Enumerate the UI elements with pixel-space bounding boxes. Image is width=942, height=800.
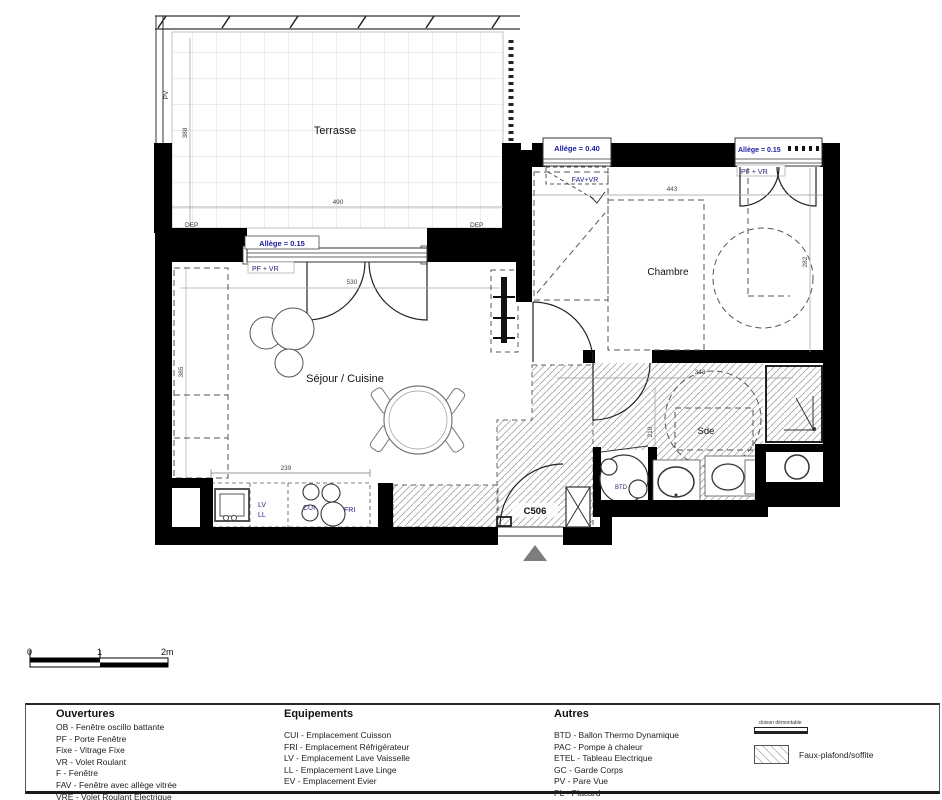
dep-right-label: DEP — [470, 222, 483, 229]
dim-chambre-width: 443 — [667, 186, 678, 193]
dining-table — [369, 386, 466, 454]
room-label-chambre: Chambre — [647, 267, 689, 278]
room-label-terrasse: Terrasse — [314, 125, 356, 137]
legend-symbol-faux-plafond: Faux-plafond/soffite — [754, 745, 874, 764]
dim-sejour-depth: 385 — [178, 366, 185, 377]
kitchen: LV LL CUI FRI 239 — [168, 465, 393, 528]
label-lv: LV — [258, 502, 266, 509]
label-ll: LL — [258, 512, 266, 519]
allege-chambre-left-label: Allége = 0.40 — [554, 144, 600, 153]
unit-number: C506 — [524, 506, 547, 517]
legend-item: Fixe - Vitrage Fixe — [56, 745, 177, 757]
legend-item: PAC - Pompe à chaleur — [554, 742, 679, 754]
floor-plan-drawing: PV 388 490 DEP DEP Terrasse Allège = 0.1… — [0, 0, 942, 695]
dim-chambre-depth: 282 — [802, 256, 809, 267]
legend-symbol-cloison: cloison démontable — [754, 720, 834, 734]
legend-item: GC - Garde Corps — [554, 765, 679, 777]
scale-bar: 0 1 2m — [27, 647, 174, 667]
dim-sejour-width: 530 — [347, 279, 358, 286]
legend-autres: Autres BTD - Ballon Thermo Dynamique PAC… — [554, 705, 679, 800]
dim-kitchen: 239 — [281, 465, 292, 472]
duct-circle — [785, 455, 809, 479]
legend-item: LV - Emplacement Lave Vaisselle — [284, 753, 410, 765]
window-type-chambre-right: PF + VR — [741, 169, 768, 176]
sejour-door-swings — [307, 262, 427, 320]
legend-item: OB - Fenêtre oscillo battante — [56, 722, 177, 734]
legend-item: EV - Emplacement Evier — [284, 776, 410, 788]
legend-ouvertures-title: Ouvertures — [56, 708, 177, 720]
allege-chambre-right-label: Allège = 0.15 — [738, 147, 781, 154]
legend: Ouvertures OB - Fenêtre oscillo battante… — [25, 703, 940, 794]
pare-vue-label: PV — [163, 90, 170, 99]
legend-item: F - Fenêtre — [56, 768, 177, 780]
faux-plafond-kitchen — [393, 485, 498, 527]
washbasin — [653, 460, 700, 502]
legend-item: ETEL - Tableau Electrique — [554, 753, 679, 765]
scale-2m: 2m — [161, 647, 174, 657]
legend-ouvertures: Ouvertures OB - Fenêtre oscillo battante… — [56, 705, 177, 800]
room-label-sde: Sde — [698, 426, 715, 437]
legend-item: FAV - Fenêtre avec allège vitrée — [56, 780, 177, 792]
legend-item: PL - Placard — [554, 788, 679, 800]
coffee-tables — [250, 308, 314, 377]
entrance-marker-triangle — [523, 545, 547, 561]
dim-terrasse-width: 490 — [333, 199, 344, 206]
allege-sejour-label: Allège = 0.15 — [259, 239, 305, 248]
floor-plan-page: PV 388 490 DEP DEP Terrasse Allège = 0.1… — [0, 0, 942, 800]
dim-terrasse-depth: 388 — [182, 127, 189, 138]
room-sde: 343 210 Sde BTD — [557, 363, 840, 545]
sink — [215, 489, 249, 521]
legend-item: CUI - Emplacement Cuisson — [284, 730, 410, 742]
btd-water-heater: BTD — [593, 446, 657, 503]
window-type-sejour: PF + VR — [252, 266, 279, 273]
legend-item: VR - Volet Roulant — [56, 757, 177, 769]
legend-item: VRE - Volet Roulant Electrique — [56, 792, 177, 800]
wall-hatch-ticks — [158, 16, 500, 28]
faux-plafond-swatch — [754, 745, 789, 764]
legend-item: PF - Porte Fenêtre — [56, 734, 177, 746]
legend-item: LL - Emplacement Lave Linge — [284, 765, 410, 777]
cloison-bar-symbol — [754, 727, 808, 734]
dep-left-label: DEP — [185, 222, 198, 229]
room-label-sejour: Séjour / Cuisine — [306, 373, 384, 385]
label-btd: BTD — [615, 485, 628, 491]
label-fri: FRI — [344, 507, 355, 514]
label-cui: CUI — [303, 505, 315, 512]
legend-item: FRI - Emplacement Réfrigérateur — [284, 742, 410, 754]
window-type-chambre-left: FAV+VR — [572, 177, 599, 184]
legend-item: PV - Pare Vue — [554, 776, 679, 788]
legend-equipements: Equipements CUI - Emplacement Cuisson FR… — [284, 705, 410, 788]
legend-equipements-title: Equipements — [284, 708, 410, 720]
shower — [766, 366, 822, 442]
cloison-label: cloison démontable — [754, 720, 806, 726]
faux-plafond-label: Faux-plafond/soffite — [799, 750, 874, 760]
legend-autres-title: Autres — [554, 708, 679, 720]
dim-sde-width: 343 — [695, 369, 706, 376]
terrace: PV 388 490 DEP DEP Terrasse — [154, 16, 532, 262]
legend-item: BTD - Ballon Thermo Dynamique — [554, 730, 679, 742]
dim-sde-depth: 210 — [647, 426, 654, 437]
radiator — [491, 270, 518, 352]
chambre-door-swings — [533, 167, 816, 362]
technical-shaft — [566, 487, 590, 527]
toilet — [705, 456, 758, 496]
